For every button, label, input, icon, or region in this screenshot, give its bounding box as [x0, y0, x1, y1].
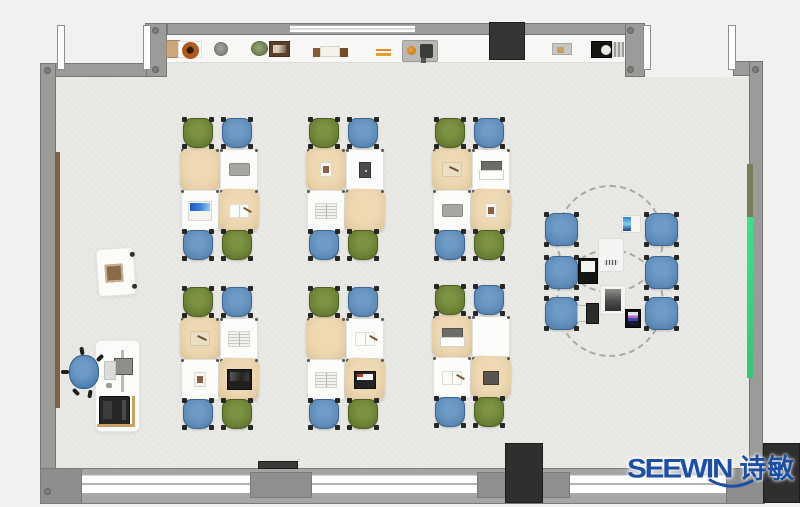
chair-leg [473, 311, 478, 316]
laptop-black-red [354, 371, 376, 389]
chair-leg [182, 425, 187, 430]
notebook-open [229, 204, 249, 218]
student-desk [220, 149, 258, 190]
chair-leg [544, 255, 549, 260]
chair-leg [461, 396, 466, 401]
wall-board-green [747, 217, 753, 378]
chair-leg [308, 256, 313, 261]
chair-leg [374, 398, 379, 403]
chair-leg [644, 242, 649, 247]
book-open [315, 372, 337, 388]
student-chair-green [183, 287, 213, 317]
chair-leg [335, 313, 340, 318]
chair-leg [674, 212, 679, 217]
collab-chair-blue [645, 256, 678, 289]
student-desk [433, 357, 471, 398]
chair-leg [248, 425, 253, 430]
student-desk [220, 318, 258, 359]
chair-leg [61, 370, 69, 374]
student-desk [181, 149, 219, 190]
notebook-tan [442, 162, 462, 177]
student-chair-green [435, 118, 465, 148]
chair-leg [644, 326, 649, 331]
student-chair-blue [435, 397, 465, 427]
student-desk [433, 149, 471, 190]
keyboard-icon [104, 361, 116, 380]
chair-leg [434, 311, 439, 316]
counter-item-tray [402, 40, 438, 62]
chair-leg [461, 423, 466, 428]
chair-leg [221, 144, 226, 149]
door-frame-left-1 [57, 25, 65, 70]
photo-card [194, 372, 206, 387]
bottom-wall-pier-1 [250, 472, 312, 498]
door-frame-left-2 [143, 25, 151, 70]
chair-leg [209, 144, 214, 149]
student-chair-green [222, 399, 252, 429]
tablet-dark [359, 162, 371, 178]
chair-leg [500, 396, 505, 401]
student-desk [307, 149, 345, 190]
device-laptop-black-open2 [578, 258, 598, 284]
student-chair-blue [348, 118, 378, 148]
chair-leg [544, 212, 549, 217]
chair-leg [644, 255, 649, 260]
chair-leg [374, 229, 379, 234]
chair-leg [347, 398, 352, 403]
chair-leg [374, 256, 379, 261]
teacher-side-table [95, 247, 136, 298]
keyboard-white [440, 328, 464, 346]
notebook-open [442, 371, 462, 385]
chair-leg [335, 144, 340, 149]
student-chair-green [183, 118, 213, 148]
device-pad-laptop-dark [598, 238, 624, 272]
bottom-left-corner [40, 468, 82, 504]
chair-leg [434, 396, 439, 401]
chair-leg [182, 313, 187, 318]
chair-leg [182, 117, 187, 122]
chair-leg [644, 296, 649, 301]
logo-swoosh-icon [708, 478, 754, 490]
chair-leg [473, 423, 478, 428]
book-open [315, 203, 337, 219]
chair-leg [674, 326, 679, 331]
student-chair-blue [309, 230, 339, 260]
door-frame-right-2 [728, 25, 736, 70]
chair-leg [221, 398, 226, 403]
chair-leg [374, 144, 379, 149]
chair-leg [308, 425, 313, 430]
chair-leg [544, 285, 549, 290]
chair-leg [209, 398, 214, 403]
chair-leg [473, 256, 478, 261]
chair-leg [335, 256, 340, 261]
keyboard-white [479, 161, 503, 179]
desk-cluster [181, 118, 259, 264]
student-chair-blue [348, 287, 378, 317]
chair-leg [674, 242, 679, 247]
desk-cover [180, 148, 221, 192]
student-desk [346, 149, 384, 190]
collab-chair-blue [645, 297, 678, 330]
student-desk [307, 190, 345, 231]
notebook-tan [190, 331, 210, 346]
student-chair-green [348, 399, 378, 429]
student-desk [472, 149, 510, 190]
desk-cluster [433, 118, 511, 264]
counter-item-pens [376, 49, 391, 56]
student-desk [433, 316, 471, 357]
chair-leg [182, 144, 187, 149]
chair-leg [209, 229, 214, 234]
photo-card [485, 203, 497, 218]
chair-leg [500, 311, 505, 316]
chair-leg [374, 117, 379, 122]
chair-leg [544, 326, 549, 331]
chair-leg [308, 229, 313, 234]
teacher-chair [66, 352, 102, 392]
chair-leg [248, 144, 253, 149]
wall-display [489, 22, 525, 60]
counter-item-plant [251, 41, 268, 56]
chair-leg [335, 425, 340, 430]
laptop-gray [442, 204, 463, 217]
chair-leg [335, 286, 340, 291]
chair-leg [347, 313, 352, 318]
student-chair-blue [435, 230, 465, 260]
student-chair-green [474, 397, 504, 427]
chair-leg [434, 423, 439, 428]
desk-cluster [307, 118, 385, 264]
chair-leg [500, 423, 505, 428]
chair-leg [461, 144, 466, 149]
chair-leg [374, 425, 379, 430]
device-tablet-blue [621, 215, 641, 233]
student-chair-blue [222, 287, 252, 317]
collab-chair-blue [645, 213, 678, 246]
chair-leg [248, 398, 253, 403]
book-open [228, 331, 250, 347]
brand-logo: SEEWIN 诗敏 [628, 447, 795, 486]
desk-edge-trim [97, 424, 135, 427]
student-desk [472, 190, 510, 231]
wall-screw [152, 66, 159, 73]
student-desk [346, 318, 384, 359]
chair-leg [374, 286, 379, 291]
student-desk [307, 318, 345, 359]
student-chair-blue [222, 118, 252, 148]
wall-screw [627, 27, 634, 34]
student-chair-green [435, 285, 465, 315]
wall-rail-wood-left [55, 152, 60, 408]
chair-leg [473, 284, 478, 289]
chair-leg [209, 425, 214, 430]
chair-leg [335, 117, 340, 122]
chair-leg [248, 256, 253, 261]
chair-leg [221, 313, 226, 318]
wall-screw [627, 66, 634, 73]
chair-seat [69, 355, 99, 389]
collab-chair-blue [545, 213, 578, 246]
desk-cluster [433, 285, 511, 431]
student-chair-green [309, 118, 339, 148]
chair-leg [182, 256, 187, 261]
chair-leg [434, 256, 439, 261]
desk-cover [344, 188, 385, 232]
chair-leg [544, 242, 549, 247]
chair-leg [674, 296, 679, 301]
collab-chair-blue [545, 256, 578, 289]
student-desk [181, 318, 219, 359]
chair-leg [209, 117, 214, 122]
student-chair-green [474, 230, 504, 260]
photo-frame-icon [104, 264, 123, 283]
desk-cluster [181, 287, 259, 433]
chair-leg [182, 229, 187, 234]
chair-leg [473, 144, 478, 149]
chair-leg [500, 284, 505, 289]
chair-leg [473, 396, 478, 401]
student-desk [346, 359, 384, 400]
chair-leg [347, 229, 352, 234]
chair-leg [308, 117, 313, 122]
chair-leg [674, 285, 679, 290]
chair-leg [473, 117, 478, 122]
chair-leg [461, 256, 466, 261]
device-phone-colorful [625, 309, 641, 328]
chair-leg [644, 285, 649, 290]
monitor-icon [114, 358, 133, 375]
chair-leg [335, 398, 340, 403]
device-laptop-small [577, 303, 599, 324]
chair-leg [248, 229, 253, 234]
bottom-window-1 [80, 474, 250, 495]
wall-screw [44, 67, 51, 74]
chair-leg [347, 256, 352, 261]
chair-leg [644, 212, 649, 217]
chair-leg [221, 256, 226, 261]
chair-leg [347, 144, 352, 149]
chair-leg [248, 313, 253, 318]
student-desk [307, 359, 345, 400]
student-chair-blue [309, 399, 339, 429]
chair-leg [308, 286, 313, 291]
chair-leg [434, 284, 439, 289]
chair-leg [544, 296, 549, 301]
student-chair-blue [183, 399, 213, 429]
chair-leg [182, 398, 187, 403]
chair-leg [308, 313, 313, 318]
student-chair-blue [474, 118, 504, 148]
chair-leg [221, 425, 226, 430]
chair-leg [209, 256, 214, 261]
chair-leg [335, 229, 340, 234]
device-pad-laptop-gray [600, 285, 626, 315]
student-desk [472, 316, 510, 357]
chair-leg [461, 311, 466, 316]
chair-leg [248, 117, 253, 122]
laptop-black-open [227, 369, 252, 390]
chair-leg [221, 117, 226, 122]
chair-leg [473, 229, 478, 234]
chair-leg [248, 286, 253, 291]
chair-leg [434, 229, 439, 234]
student-desk [220, 359, 258, 400]
desk-edge-trim [132, 396, 135, 427]
chair-leg [221, 229, 226, 234]
door-frame-right-1 [643, 25, 651, 70]
chair-leg [434, 117, 439, 122]
chair-leg [500, 229, 505, 234]
chair-leg [574, 242, 579, 247]
chair-leg [308, 144, 313, 149]
chair-leg [347, 117, 352, 122]
student-desk [181, 190, 219, 231]
chair-leg [674, 255, 679, 260]
student-chair-green [309, 287, 339, 317]
bottom-column-block [505, 443, 543, 503]
wall-screw [152, 27, 159, 34]
counter-item-tray-small [552, 43, 572, 55]
wall-vent [258, 461, 298, 469]
chair-leg [500, 144, 505, 149]
mouse-icon [106, 383, 112, 388]
wall-screw [44, 488, 51, 495]
student-desk [472, 357, 510, 398]
chair-leg [574, 285, 579, 290]
chair-leg [500, 256, 505, 261]
chair-leg [182, 286, 187, 291]
chair-leg [500, 117, 505, 122]
student-chair-green [222, 230, 252, 260]
counter-item-frame [269, 41, 290, 57]
laptop-gray [229, 163, 250, 176]
student-desk [220, 190, 258, 231]
counter-item-device [591, 41, 612, 58]
bottom-window-2 [312, 474, 477, 495]
chair-leg [574, 296, 579, 301]
printer [99, 396, 130, 425]
chair-leg [347, 286, 352, 291]
left-wall [40, 63, 56, 504]
counter-item-stone [214, 42, 228, 56]
student-chair-blue [474, 285, 504, 315]
notebook-open [355, 332, 375, 346]
chair-leg [574, 326, 579, 331]
student-chair-green [348, 230, 378, 260]
chair-leg [209, 313, 214, 318]
chair-leg [461, 284, 466, 289]
photo-card [320, 162, 332, 177]
book-dark [483, 371, 499, 385]
chair-leg [209, 286, 214, 291]
chair-leg [308, 398, 313, 403]
chair-leg [221, 286, 226, 291]
desk-cover [306, 317, 347, 361]
counter-item-books [320, 46, 340, 57]
student-chair-blue [183, 230, 213, 260]
top-wall-window [290, 25, 415, 33]
chair-leg [434, 144, 439, 149]
floor-plan-render: SEEWIN 诗敏 [0, 0, 800, 507]
student-desk [433, 190, 471, 231]
student-desk [346, 190, 384, 231]
desk-cluster [307, 287, 385, 433]
wall-screw [752, 66, 759, 73]
chair-leg [461, 117, 466, 122]
chair-leg [461, 229, 466, 234]
wall-rail-right [747, 164, 753, 217]
chair-leg [374, 313, 379, 318]
chair-leg [347, 425, 352, 430]
chair-leg [574, 212, 579, 217]
collab-chair-blue [545, 297, 578, 330]
student-desk [181, 359, 219, 400]
counter-item-pot [178, 41, 202, 58]
laptop-open [188, 201, 212, 221]
